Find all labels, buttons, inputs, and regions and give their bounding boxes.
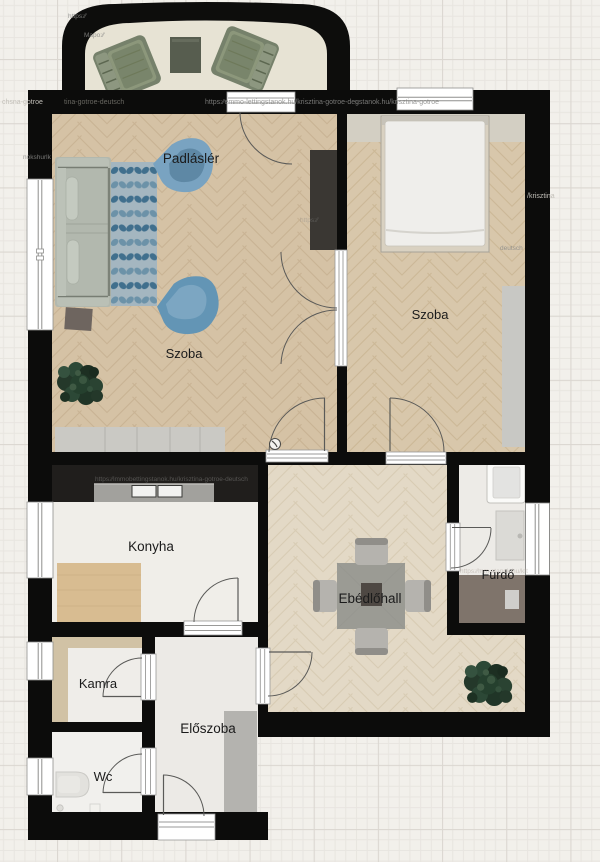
svg-text:https:∕∕: https:∕∕ (300, 217, 319, 224)
svg-text:https:∕∕: https:∕∕ (68, 13, 87, 20)
svg-text:Kamra: Kamra (79, 676, 118, 691)
svg-text:https:∕∕immobettingstanok.hu/k: https:∕∕immobettingstanok.hu/krisztina-g… (95, 476, 248, 483)
svg-text:chsna-gotroe: chsna-gotroe (2, 99, 43, 106)
svg-text:tina-gotroe-deutsch: tina-gotroe-deutsch (64, 99, 124, 106)
svg-text:/krisztina: /krisztina (527, 193, 555, 200)
svg-text:Mapo:∕∕: Mapo:∕∕ (84, 32, 105, 39)
svg-text:https:∕∕mm-stanok.hu/kft: https:∕∕mm-stanok.hu/kft (460, 568, 528, 575)
svg-text:Szoba: Szoba (412, 307, 450, 322)
svg-text:Ebédlőhall: Ebédlőhall (338, 591, 401, 606)
svg-text:gstanok.hu/krisztina-gotroe: gstanok.hu/krisztina-gotroe (355, 99, 439, 106)
svg-text:Padláslér: Padláslér (163, 151, 220, 166)
svg-text:Szoba: Szoba (166, 346, 204, 361)
svg-text:Wc: Wc (94, 769, 113, 784)
svg-text:https:∕∕emmo-lettingstanok.hu/: https:∕∕emmo-lettingstanok.hu/krisztina-… (205, 99, 359, 106)
svg-text:deutsch: deutsch (500, 245, 523, 252)
svg-text:Konyha: Konyha (128, 539, 174, 554)
svg-text:nokshurlk: nokshurlk (23, 154, 52, 161)
svg-text:Előszoba: Előszoba (180, 721, 236, 736)
